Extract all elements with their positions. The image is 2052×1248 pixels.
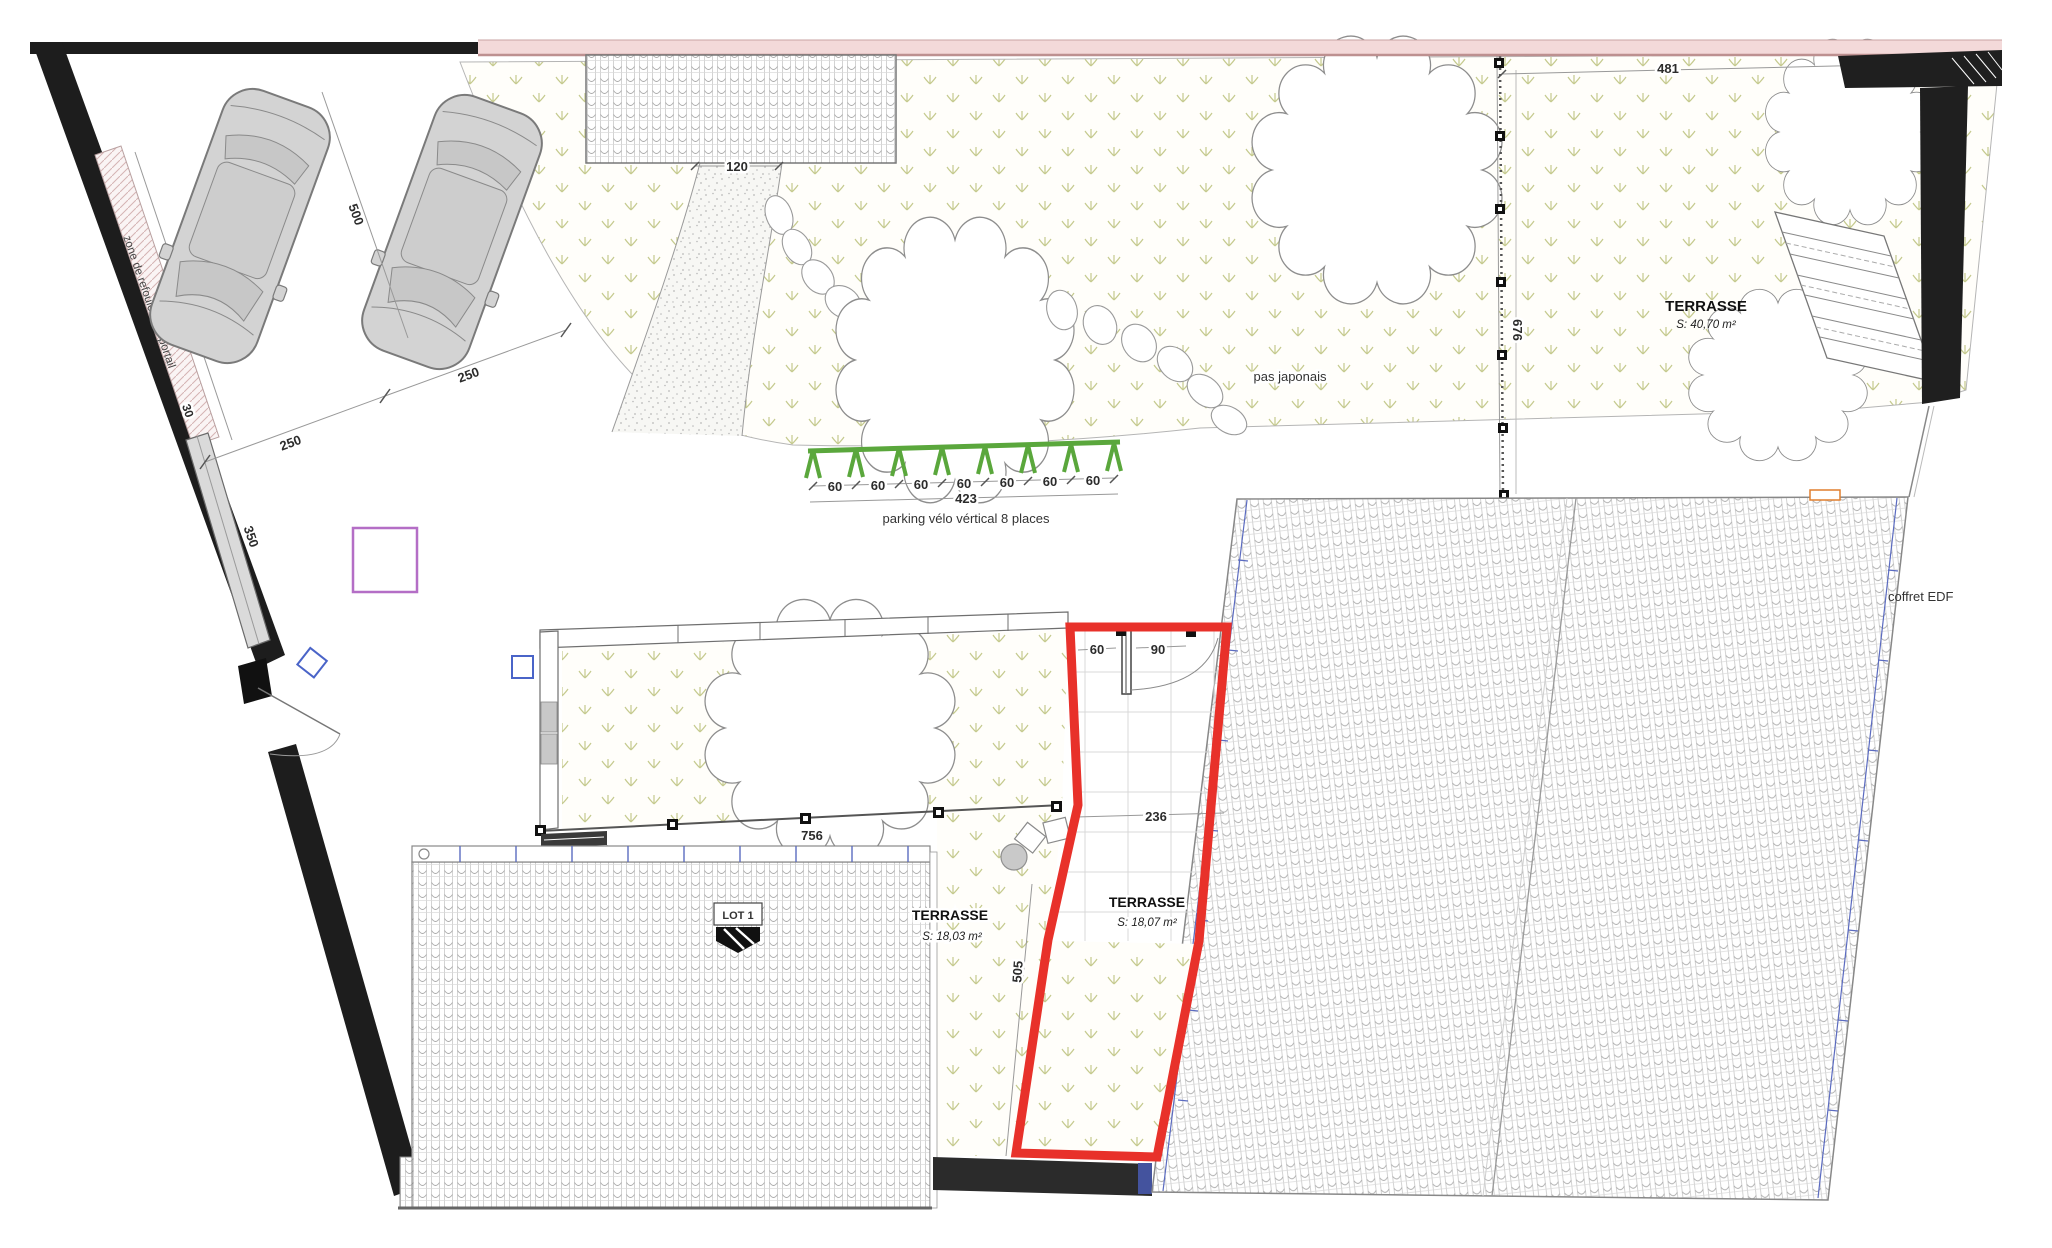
dim-756: 756	[801, 828, 823, 843]
terrace-north-label: TERRASSE S: 40,70 m²	[1665, 298, 1747, 331]
purple-marker-square	[353, 528, 417, 592]
pas-japonais-label: pas japonais	[1254, 369, 1327, 384]
dim-481: 481	[1657, 61, 1679, 76]
svg-text:236: 236	[1145, 809, 1167, 824]
svg-text:60: 60	[1000, 475, 1014, 490]
dim-250-b: 250	[456, 364, 482, 386]
wall-bottom-center	[933, 1157, 1152, 1196]
blue-marker-diamond	[297, 648, 326, 677]
coffret-edf-box	[1810, 490, 1840, 500]
svg-text:60: 60	[957, 476, 971, 491]
svg-text:TERRASSE: TERRASSE	[1665, 298, 1747, 315]
swing-gate	[258, 688, 340, 756]
svg-text:60: 60	[914, 477, 928, 492]
car-2	[344, 83, 560, 382]
site-plan-page: pas japonais 676 481 TERRASSE S: 40,70 m…	[0, 0, 2052, 1248]
coffret-edf-label: coffret EDF	[1888, 589, 1954, 604]
tile-canopy: 120	[586, 55, 896, 174]
svg-text:LOT 1: LOT 1	[722, 910, 753, 922]
svg-text:TERRASSE: TERRASSE	[1109, 894, 1185, 910]
dim-423: 423	[955, 491, 977, 506]
dim-red-90: 90	[1151, 642, 1165, 657]
svg-text:TERRASSE: TERRASSE	[912, 907, 988, 923]
strip-west-wall	[540, 631, 558, 830]
dim-500: 500	[345, 202, 367, 228]
svg-text:60: 60	[871, 478, 885, 493]
svg-text:60: 60	[1043, 474, 1057, 489]
round-table	[1001, 844, 1027, 870]
blue-marker-square	[512, 656, 533, 678]
wall-top	[30, 42, 485, 54]
svg-text:60: 60	[1086, 473, 1100, 488]
svg-text:S: 40,70 m²: S: 40,70 m²	[1676, 319, 1737, 331]
pink-band	[478, 40, 2002, 56]
svg-text:S: 18,03 m²: S: 18,03 m²	[922, 931, 983, 943]
red-terrace-door	[1116, 626, 1218, 694]
bike-parking-label: parking vélo vértical 8 places	[883, 511, 1050, 526]
svg-text:505: 505	[1009, 960, 1025, 983]
car-1	[132, 77, 348, 376]
lot1-roof: LOT 1	[398, 846, 937, 1208]
site-plan-drawing: pas japonais 676 481 TERRASSE S: 40,70 m…	[0, 0, 2052, 1248]
dim-676: 676	[1510, 319, 1525, 341]
tree-center	[836, 217, 1074, 503]
svg-text:60: 60	[828, 479, 842, 494]
tree-top-center	[1252, 36, 1502, 304]
svg-text:S: 18,07 m²: S: 18,07 m²	[1117, 917, 1178, 929]
main-roof	[1152, 490, 1908, 1200]
dim-250-a: 250	[278, 432, 304, 454]
dim-120: 120	[726, 159, 748, 174]
lot1-gutter	[412, 846, 930, 862]
dim-red-60: 60	[1090, 642, 1104, 657]
